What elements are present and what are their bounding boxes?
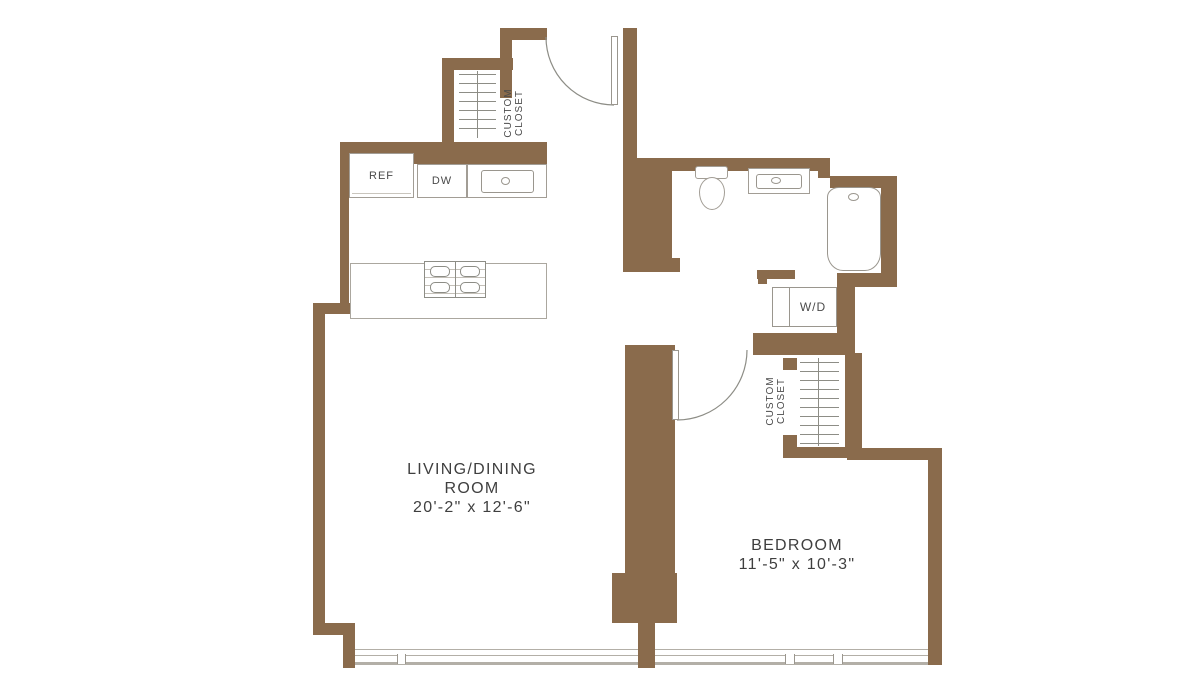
wall-bathroom-door-jamb xyxy=(672,258,680,272)
wall-bedroom-closet-bottom-tab xyxy=(783,435,797,447)
wall-middle-column xyxy=(612,573,677,623)
closet-hanger-ticks xyxy=(800,362,839,446)
door-arcs-layer xyxy=(0,0,1200,675)
refrigerator-label: REF xyxy=(349,153,414,198)
wall-vestibule-right xyxy=(623,28,637,171)
wall-wd-top xyxy=(757,270,795,279)
bedroom-dimensions: 11'-5" x 10'-3" xyxy=(739,555,856,574)
closet-label-line1: CUSTOM xyxy=(765,376,777,425)
wall-entry-closet-left xyxy=(442,58,454,153)
wall-kitchen-cabinet-band xyxy=(413,153,547,164)
wall-kitchen-top xyxy=(340,142,547,153)
window-mullion xyxy=(833,654,843,664)
wall-middle-stem xyxy=(638,623,655,668)
entry-custom-closet-label: CUSTOM CLOSET xyxy=(502,85,526,141)
wall-middle xyxy=(625,345,675,573)
bathroom-faucet-icon xyxy=(771,177,781,184)
wall-bedroom-top xyxy=(847,448,940,460)
wall-wd-tab xyxy=(758,279,767,284)
bedroom-custom-closet-label: CUSTOM CLOSET xyxy=(764,373,788,429)
floor-plan: REF DW W/D CUSTOM CLOSET CUSTOM CLOSET xyxy=(0,0,1200,675)
closet-label-line2: CLOSET xyxy=(514,90,526,136)
bedroom-name: BEDROOM xyxy=(751,536,843,555)
toilet-bowl xyxy=(699,177,725,210)
stove xyxy=(424,261,486,298)
stove-right-half xyxy=(456,262,486,297)
bathtub-drain-icon xyxy=(848,193,859,201)
living-dining-room-label: LIVING/DINING ROOM 20'-2" x 12'-6" xyxy=(362,460,582,517)
washer-dryer-label: W/D xyxy=(789,287,837,327)
wall-living-bottom-left xyxy=(343,635,355,668)
wall-below-wd xyxy=(753,333,843,355)
bedroom-label: BEDROOM 11'-5" x 10'-3" xyxy=(687,536,907,574)
wall-tub-step xyxy=(818,171,830,178)
stove-left-half xyxy=(425,262,456,297)
entry-door-swing-arc xyxy=(546,37,614,105)
wall-bathroom-left-block xyxy=(623,171,672,272)
wall-entry-top xyxy=(500,28,547,40)
closet-rod xyxy=(477,71,478,138)
bedroom-door-swing-arc xyxy=(677,350,747,420)
window-mullion xyxy=(397,654,406,664)
wall-living-left-lower xyxy=(313,303,325,629)
dishwasher-label: DW xyxy=(417,164,467,198)
living-room-dimensions: 20'-2" x 12'-6" xyxy=(413,498,531,517)
closet-rod xyxy=(818,358,819,446)
wall-bedroom-closet-top-tab xyxy=(783,358,797,370)
kitchen-faucet-icon xyxy=(501,177,510,185)
burner-icon xyxy=(460,282,480,293)
bedroom-door xyxy=(672,350,679,420)
burner-icon xyxy=(430,266,450,277)
wall-bedroom-closet-right xyxy=(845,353,862,458)
burner-icon xyxy=(430,282,450,293)
window-mullion xyxy=(785,654,795,664)
wall-bedroom-closet-bottom xyxy=(783,447,847,458)
wall-living-left-upper xyxy=(340,142,349,312)
closet-label-line2: CLOSET xyxy=(776,378,788,424)
wall-living-bottom-step xyxy=(313,623,355,635)
closet-label-line1: CUSTOM xyxy=(503,88,515,137)
burner-icon xyxy=(460,266,480,277)
wall-bedroom-right xyxy=(928,448,942,665)
living-room-name-line1: LIVING/DINING xyxy=(407,460,537,479)
living-room-name-line2: ROOM xyxy=(445,479,500,498)
entry-door xyxy=(611,36,618,105)
